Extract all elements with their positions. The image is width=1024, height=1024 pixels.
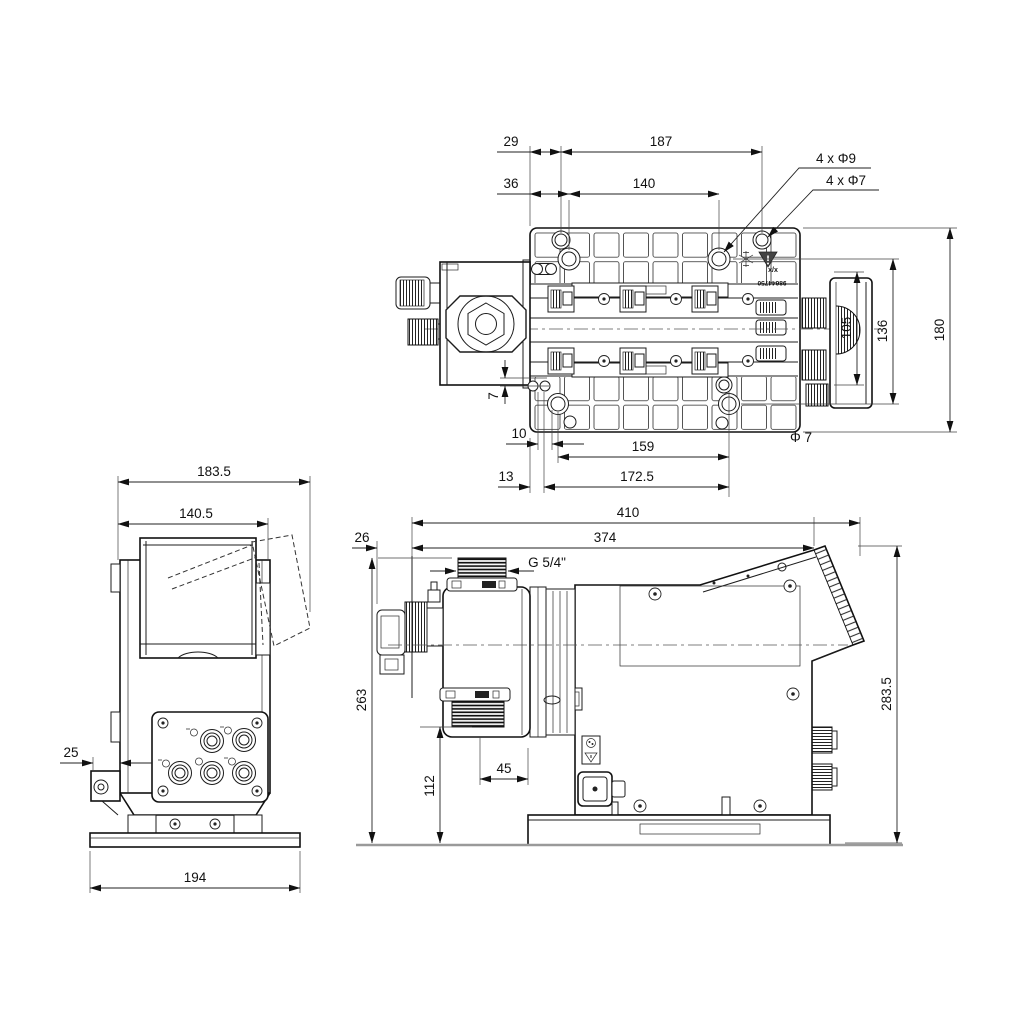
- dim-label: 159: [632, 439, 655, 454]
- knob-icon: [806, 384, 828, 406]
- knob-icon: [812, 764, 832, 790]
- hinge-tab: [111, 712, 120, 742]
- base-plate-front: [90, 833, 300, 847]
- dim-159: 159: [558, 439, 729, 457]
- front-view: 183.5 140.5 25 194: [60, 464, 310, 893]
- dim-label: 263: [354, 689, 369, 712]
- dim-180: 180: [932, 228, 950, 432]
- dim-label: 183.5: [197, 464, 231, 479]
- dim-36: 36: [497, 176, 569, 194]
- dim-label: 180: [932, 319, 947, 342]
- dim-410: 410: [412, 505, 860, 523]
- plate-marking-top: x/x: [768, 267, 778, 274]
- dim-136: 136: [875, 259, 893, 404]
- knob-icon: [812, 727, 832, 753]
- knob-icon: [802, 298, 826, 328]
- dim-187: 187: [561, 134, 762, 152]
- dim-label: 194: [184, 870, 207, 885]
- dim-45: 45: [480, 761, 528, 779]
- connector-plate-front: [152, 712, 268, 802]
- wall-bracket-front: [91, 771, 120, 815]
- plug-connectors-top: [756, 300, 786, 361]
- dim-label: 136: [875, 320, 890, 343]
- dosing-head-top: [396, 262, 530, 385]
- top-view: x/x 98644750 29 187 36 140 4 x Φ9 4 x Φ7: [396, 134, 957, 497]
- dim-374: 374: [412, 530, 814, 548]
- valve-top: [446, 296, 526, 352]
- dim-label: 140.5: [179, 506, 213, 521]
- technical-drawing: x/x 98644750 29 187 36 140 4 x Φ9 4 x Φ7: [0, 0, 1024, 1024]
- adjust-knob-top: [408, 319, 438, 345]
- dim-263: 263: [354, 558, 372, 843]
- plate-part-number: 98644750: [757, 279, 786, 286]
- adapter: [546, 589, 575, 735]
- dim-label: 7: [486, 392, 501, 400]
- dim-label: 10: [511, 426, 526, 441]
- cable-gland-side: [377, 582, 443, 674]
- dim-label: 13: [498, 469, 513, 484]
- dim-112: 112: [422, 727, 440, 843]
- dim-13: 13: [498, 469, 576, 487]
- holes-label: 4 x Φ9: [816, 151, 856, 166]
- dim-label: 140: [633, 176, 656, 191]
- side-view: 410 374 26 G 5/4" 263 112 45 283.5: [352, 505, 903, 845]
- dim-label: 36: [503, 176, 518, 191]
- dim-label: 172.5: [620, 469, 654, 484]
- dim-label: 187: [650, 134, 673, 149]
- knob-icon: [802, 350, 826, 380]
- holes-label: 4 x Φ7: [826, 173, 866, 188]
- dim-172-5: 172.5: [544, 469, 729, 487]
- dim-29: 29: [497, 134, 561, 152]
- dim-label: 25: [63, 745, 78, 760]
- dim-140-5: 140.5: [118, 506, 268, 524]
- dim-label: 45: [496, 761, 511, 776]
- dim-label: 410: [617, 505, 640, 520]
- thread-label: G 5/4": [528, 555, 566, 570]
- dim-26: 26: [352, 530, 377, 548]
- dim-label: 112: [422, 775, 437, 797]
- dim-283-5: 283.5: [879, 546, 897, 843]
- dim-194: 194: [90, 870, 300, 888]
- control-unit-top: [802, 278, 872, 408]
- technical-drawing-page: x/x 98644750 29 187 36 140 4 x Φ9 4 x Φ7: [0, 0, 1024, 1024]
- main-body-side: [554, 546, 864, 815]
- outlet-thread: [452, 701, 504, 727]
- inlet-thread: [458, 558, 506, 578]
- dim-label: 374: [594, 530, 617, 545]
- dim-label: 26: [354, 530, 369, 545]
- dim-label: 283.5: [879, 677, 894, 711]
- dim-label: 105: [839, 317, 854, 340]
- dim-140: 140: [569, 176, 719, 194]
- dim-label: 29: [503, 134, 518, 149]
- hinge-tab: [111, 564, 120, 592]
- control-cube-front: [140, 538, 270, 658]
- dia7-label: Φ 7: [790, 430, 812, 445]
- dim-183-5: 183.5: [118, 464, 310, 482]
